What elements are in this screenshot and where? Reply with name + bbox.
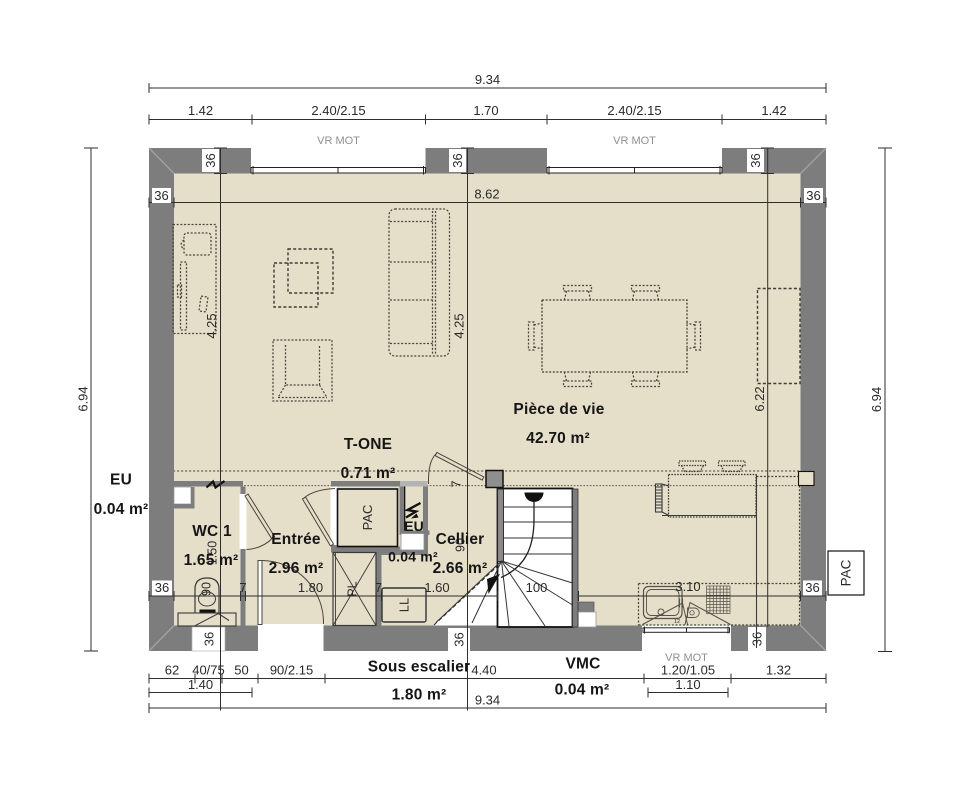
svg-text:12: 12 [674, 619, 680, 625]
svg-text:36: 36 [806, 188, 820, 203]
svg-text:2.96 m²: 2.96 m² [269, 560, 324, 577]
svg-text:36: 36 [750, 632, 765, 646]
svg-text:6.94: 6.94 [869, 387, 884, 412]
svg-text:0.04 m²: 0.04 m² [388, 549, 438, 565]
svg-text:WC 1: WC 1 [192, 523, 232, 540]
svg-text:0.04 m²: 0.04 m² [94, 501, 149, 518]
svg-text:6.22: 6.22 [752, 386, 767, 411]
svg-text:PAC: PAC [839, 559, 854, 586]
svg-text:36: 36 [202, 632, 217, 646]
svg-text:1.42: 1.42 [761, 103, 786, 118]
svg-text:3.10: 3.10 [675, 579, 700, 594]
svg-text:0.71 m²: 0.71 m² [341, 465, 396, 482]
svg-text:Sous escalier: Sous escalier [368, 659, 471, 676]
svg-text:90: 90 [200, 582, 214, 596]
svg-text:4.25: 4.25 [204, 313, 219, 338]
svg-text:36: 36 [154, 188, 168, 203]
svg-text:36: 36 [805, 580, 819, 595]
svg-text:36: 36 [748, 153, 763, 167]
svg-text:LL: LL [397, 598, 412, 612]
svg-text:1.60: 1.60 [424, 580, 449, 595]
svg-text:1.20/1.05: 1.20/1.05 [661, 663, 715, 678]
svg-text:Entrée: Entrée [271, 531, 321, 548]
svg-text:7: 7 [450, 480, 464, 487]
svg-text:Cellier: Cellier [436, 531, 485, 548]
svg-text:36: 36 [452, 632, 467, 646]
svg-text:50: 50 [234, 663, 248, 678]
svg-text:42.70 m²: 42.70 m² [526, 430, 590, 447]
svg-text:1.10: 1.10 [675, 677, 700, 692]
svg-text:8.62: 8.62 [474, 187, 499, 202]
svg-text:40/75: 40/75 [192, 663, 225, 678]
svg-text:9.34: 9.34 [475, 693, 500, 708]
svg-text:7: 7 [239, 580, 246, 595]
svg-text:1.80 m²: 1.80 m² [392, 687, 447, 704]
svg-text:1.32: 1.32 [766, 663, 791, 678]
svg-text:1.65 m²: 1.65 m² [184, 552, 239, 569]
svg-text:EU: EU [404, 518, 424, 534]
svg-text:Pièce de vie: Pièce de vie [513, 401, 604, 418]
svg-text:100: 100 [526, 580, 548, 595]
svg-text:62: 62 [165, 663, 179, 678]
svg-text:9.34: 9.34 [475, 72, 500, 87]
svg-text:VR MOT: VR MOT [317, 135, 360, 147]
svg-text:VMC: VMC [565, 656, 600, 673]
svg-text:2.40/2.15: 2.40/2.15 [607, 103, 661, 118]
svg-text:2.66 m²: 2.66 m² [433, 560, 488, 577]
svg-text:PAC: PAC [360, 505, 375, 531]
svg-text:EU: EU [110, 472, 132, 489]
svg-text:6.94: 6.94 [76, 386, 91, 411]
svg-text:4.40: 4.40 [471, 663, 496, 678]
svg-text:36: 36 [155, 580, 169, 595]
svg-text:1.40: 1.40 [188, 677, 213, 692]
svg-text:7: 7 [375, 580, 382, 595]
svg-text:PL: PL [346, 581, 360, 596]
svg-text:36: 36 [450, 153, 465, 167]
svg-text:T-ONE: T-ONE [344, 436, 392, 453]
svg-text:36: 36 [203, 153, 218, 167]
svg-text:1.70: 1.70 [473, 103, 498, 118]
svg-text:4.25: 4.25 [452, 313, 467, 338]
svg-text:2.40/2.15: 2.40/2.15 [311, 103, 365, 118]
svg-text:0.04 m²: 0.04 m² [555, 682, 610, 699]
svg-text:1.42: 1.42 [188, 103, 213, 118]
svg-text:1.80: 1.80 [298, 580, 323, 595]
svg-text:VR MOT: VR MOT [613, 135, 656, 147]
svg-text:90/2.15: 90/2.15 [270, 663, 313, 678]
